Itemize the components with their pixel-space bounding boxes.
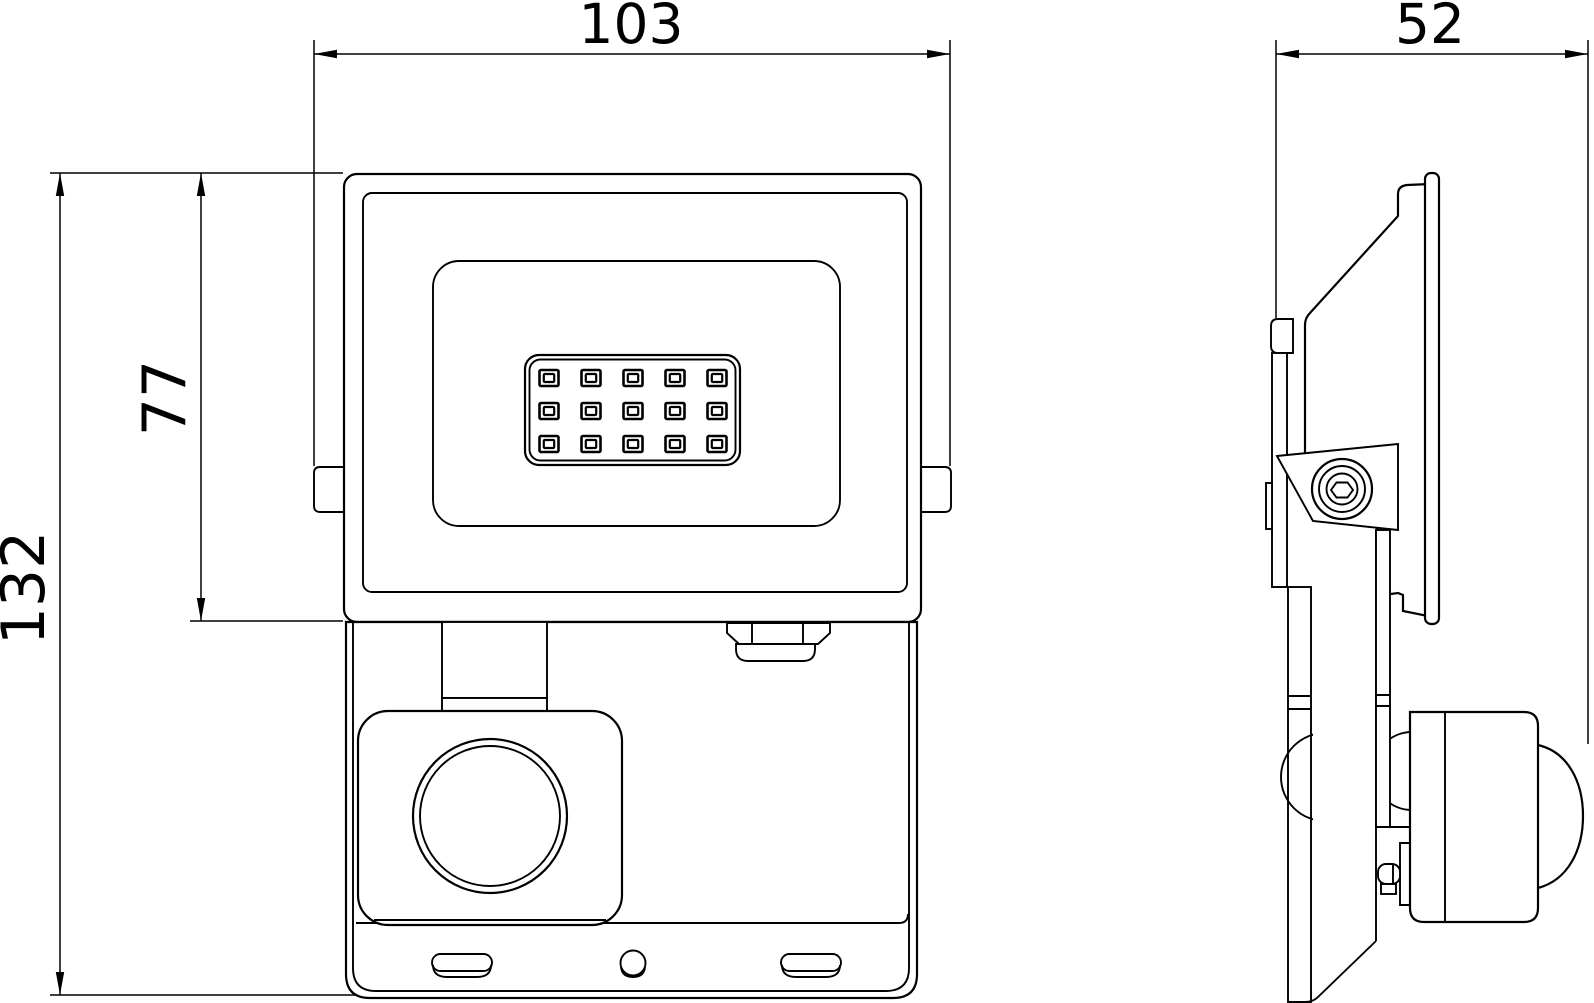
arrowhead-icon (56, 972, 64, 995)
sensor-dome (1538, 745, 1583, 888)
lamp-body (344, 174, 921, 622)
arrowhead-icon (56, 173, 64, 196)
round-hole (621, 951, 646, 976)
fixing-screw (1378, 864, 1400, 884)
stem-strip (1376, 530, 1390, 827)
left-tab (314, 467, 344, 512)
fixing-screw-tip (1381, 884, 1396, 894)
arrowhead-icon (927, 50, 950, 58)
arrowhead-icon (1565, 50, 1588, 58)
arrowhead-icon (197, 173, 205, 196)
side-sensor (1410, 712, 1583, 922)
pir-sensor-front (358, 711, 622, 925)
dim-width-value: 103 (579, 0, 684, 56)
arrowhead-icon (314, 50, 337, 58)
technical-drawing-page: 103 132 77 (0, 0, 1594, 1003)
arrowhead-icon (197, 598, 205, 621)
dim-head-height-value: 77 (130, 360, 200, 436)
dimension-total-height: 132 (0, 173, 355, 995)
bracket-notch (1266, 483, 1272, 529)
slot-hole-right (781, 954, 841, 971)
pivot-knob (1312, 459, 1372, 519)
extension-lines-total-height (50, 173, 355, 995)
bracket-strip-lower (1288, 587, 1311, 1002)
gland-nut (727, 623, 830, 644)
dim-total-height-value: 132 (0, 531, 59, 646)
sensor-body-side (1410, 712, 1538, 922)
right-tab (921, 467, 951, 512)
drawing-canvas: 103 132 77 (0, 0, 1594, 1003)
mounting-stem (442, 622, 547, 712)
knob-boss (1312, 459, 1372, 519)
stem (442, 622, 547, 698)
dim-depth-value: 52 (1395, 0, 1465, 56)
cable-gland (727, 623, 830, 661)
slot-hole-left (432, 954, 492, 971)
arrowhead-icon (1276, 50, 1299, 58)
front-view (314, 174, 951, 998)
bracket-top-tab (1271, 319, 1293, 353)
gland-cap (736, 644, 815, 661)
side-bezel (1425, 173, 1439, 624)
side-view (1266, 173, 1583, 1002)
dimension-head-height: 77 (130, 173, 343, 621)
